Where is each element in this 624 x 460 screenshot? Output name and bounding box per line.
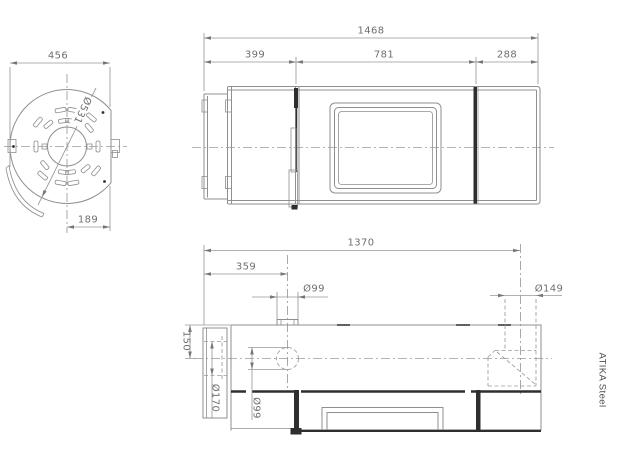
dim-plan-hub-diameter: Ø170	[210, 384, 221, 413]
dim-rear-center-offset: 189	[78, 215, 98, 226]
front-window	[330, 103, 441, 193]
dim-plan-top-flue-diameter: Ø99	[303, 284, 325, 295]
drawing-title: ATIKA Steel	[597, 353, 608, 408]
dim-plan-height-offset: 150	[181, 331, 192, 351]
plan-front-band	[231, 390, 541, 435]
dim-plan-length: 1370	[347, 238, 374, 249]
dim-rear-width: 456	[48, 51, 68, 62]
drawing-canvas	[0, 0, 624, 460]
front-door-right-edge	[474, 87, 478, 204]
front-body	[228, 87, 541, 205]
plan-view-linework	[185, 244, 562, 435]
plan-body	[231, 325, 541, 431]
dim-plan-rear-flue-diameter: Ø149	[535, 284, 564, 295]
technical-drawing-sheet: 456 Ø531 189 1468 399 781 288 1370 359 Ø…	[0, 0, 624, 460]
plan-rear-flue-hidden	[488, 351, 536, 387]
dim-front-door-section: 781	[374, 50, 394, 61]
dim-front-left-section: 399	[245, 50, 265, 61]
dim-front-right-section: 288	[497, 50, 517, 61]
rear-right-latch	[113, 151, 118, 158]
front-dimensions	[204, 33, 538, 91]
front-door-handle	[289, 87, 299, 210]
dim-front-total-width: 1468	[357, 26, 384, 37]
rear-damper-lever	[6, 166, 44, 218]
dim-plan-bottom-outlet-diameter: Ø99	[251, 397, 262, 419]
dim-plan-flue-offset: 359	[236, 262, 256, 273]
rear-view-linework	[4, 61, 127, 233]
